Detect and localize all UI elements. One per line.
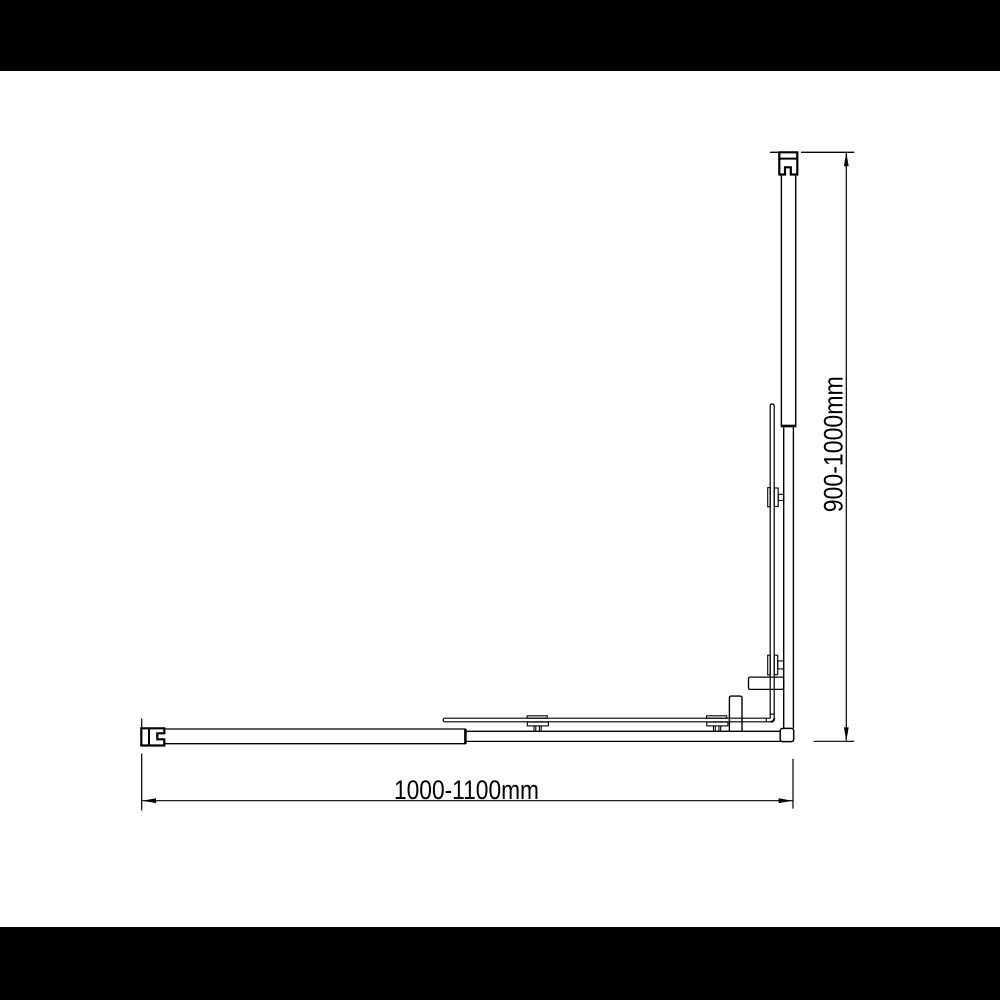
svg-text:900-1000mm: 900-1000mm <box>819 376 849 512</box>
svg-text:1000-1100mm: 1000-1100mm <box>394 775 539 805</box>
